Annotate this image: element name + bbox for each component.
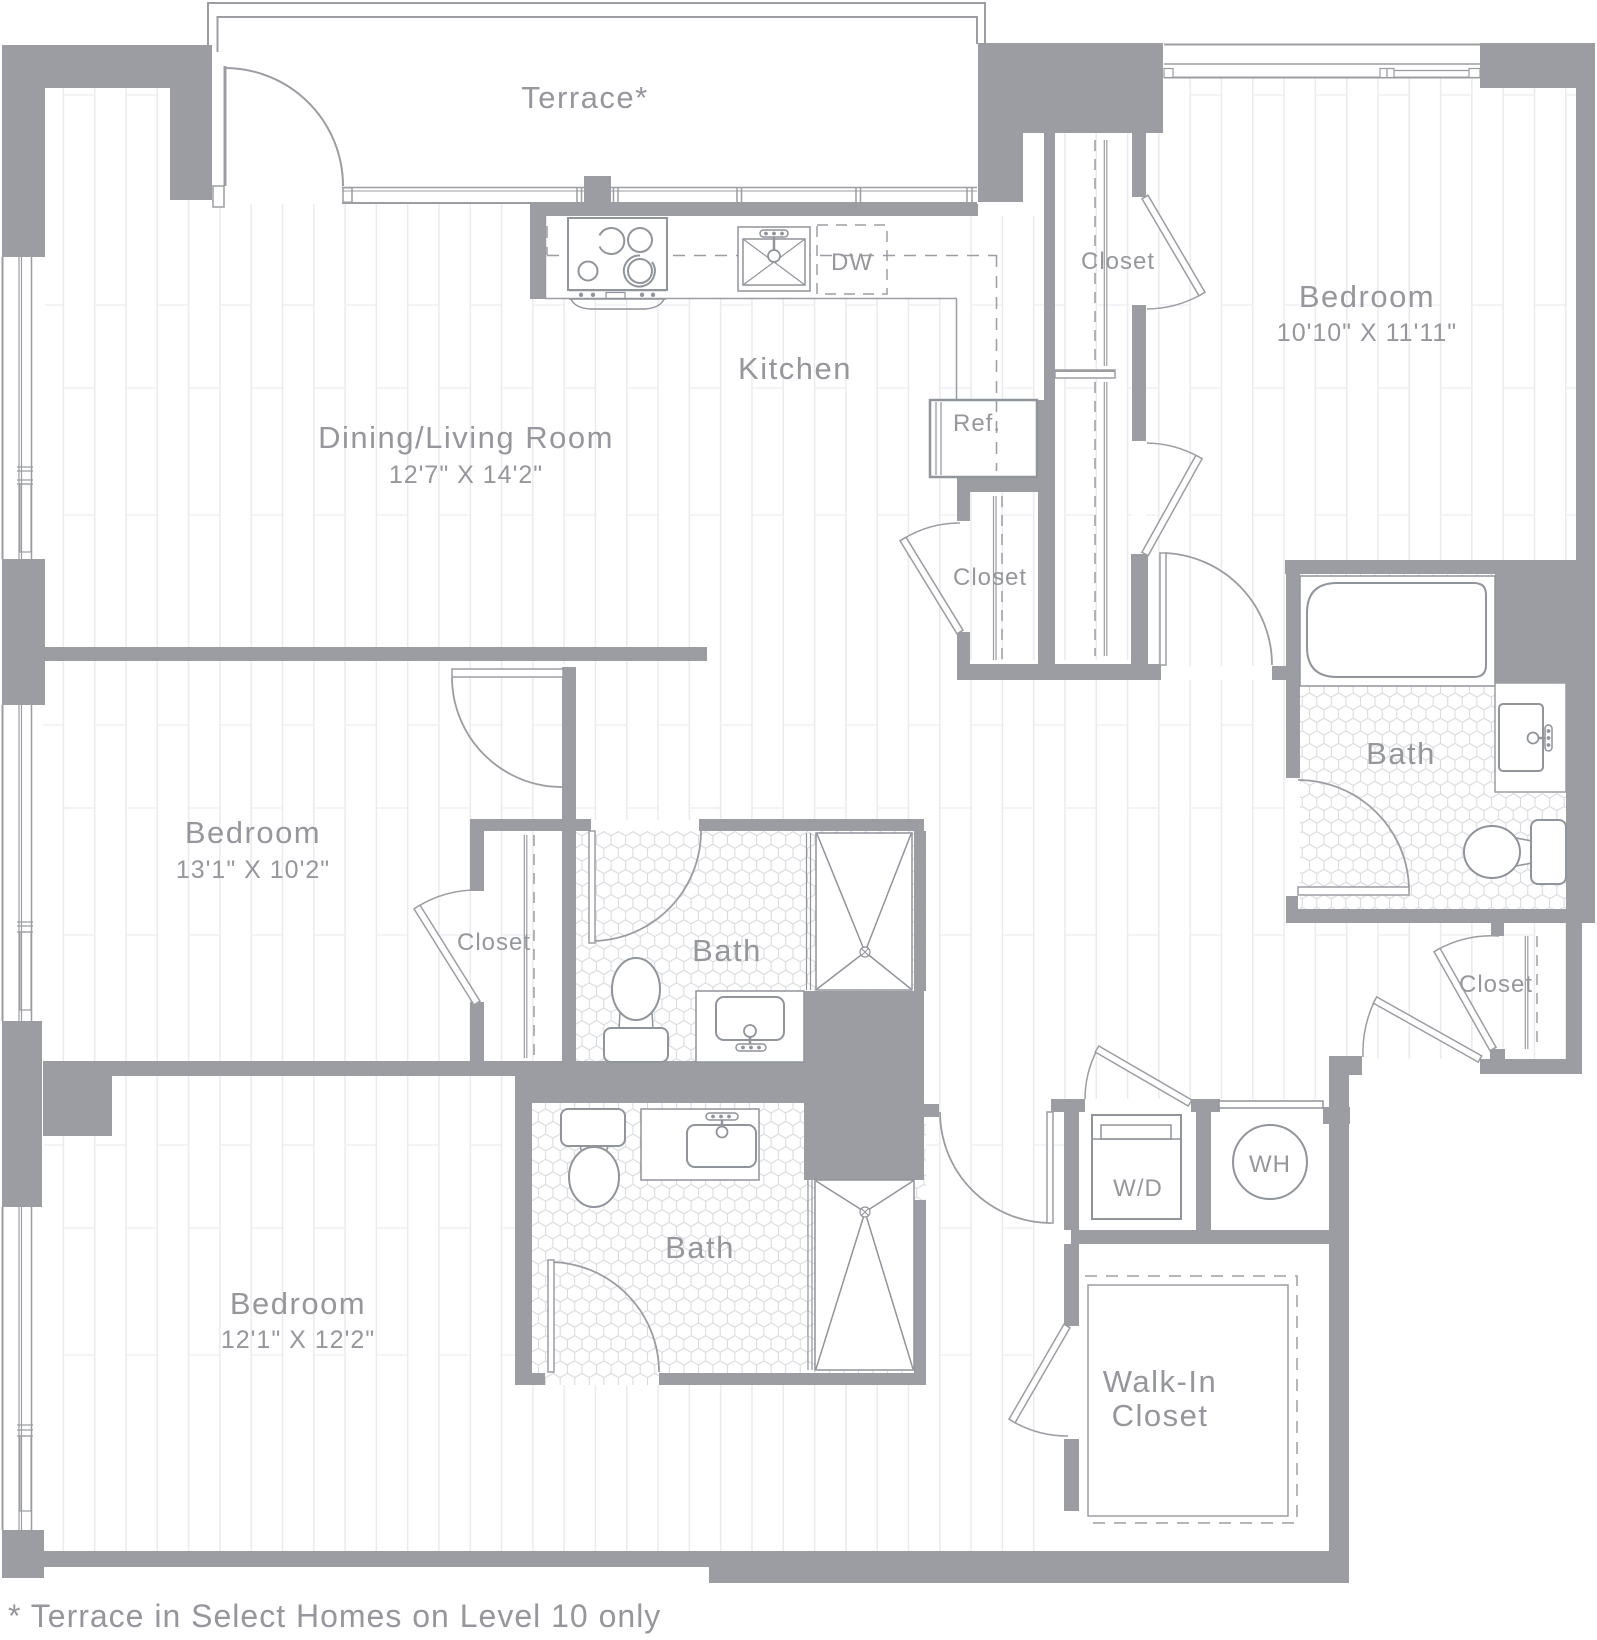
svg-text:Closet: Closet — [1112, 1398, 1209, 1433]
svg-text:Bath: Bath — [692, 933, 762, 968]
svg-text:12'7" X 14'2": 12'7" X 14'2" — [389, 461, 543, 489]
svg-text:Bedroom: Bedroom — [185, 815, 321, 850]
svg-text:* Terrace in Select Homes on L: * Terrace in Select Homes on Level 10 on… — [8, 1598, 661, 1634]
svg-text:Ref.: Ref. — [953, 410, 1001, 437]
svg-text:Bedroom: Bedroom — [1299, 279, 1435, 314]
svg-text:Closet: Closet — [1459, 971, 1533, 998]
svg-text:Kitchen: Kitchen — [738, 351, 852, 386]
svg-text:Closet: Closet — [953, 564, 1027, 591]
svg-text:Terrace*: Terrace* — [521, 80, 648, 115]
svg-text:Closet: Closet — [457, 929, 531, 956]
svg-text:Bedroom: Bedroom — [230, 1286, 366, 1321]
svg-text:W/D: W/D — [1113, 1175, 1163, 1202]
svg-text:Bath: Bath — [665, 1230, 735, 1265]
svg-text:13'1" X 10'2": 13'1" X 10'2" — [176, 856, 330, 884]
svg-text:Walk-In: Walk-In — [1103, 1364, 1217, 1399]
svg-text:Dining/Living Room: Dining/Living Room — [318, 420, 614, 455]
svg-text:DW: DW — [831, 249, 873, 276]
svg-text:WH: WH — [1249, 1151, 1291, 1178]
svg-text:Closet: Closet — [1081, 248, 1155, 275]
svg-text:Bath: Bath — [1366, 736, 1436, 771]
svg-text:10'10" X 11'11": 10'10" X 11'11" — [1277, 319, 1457, 347]
svg-text:12'1" X 12'2": 12'1" X 12'2" — [221, 1326, 375, 1354]
